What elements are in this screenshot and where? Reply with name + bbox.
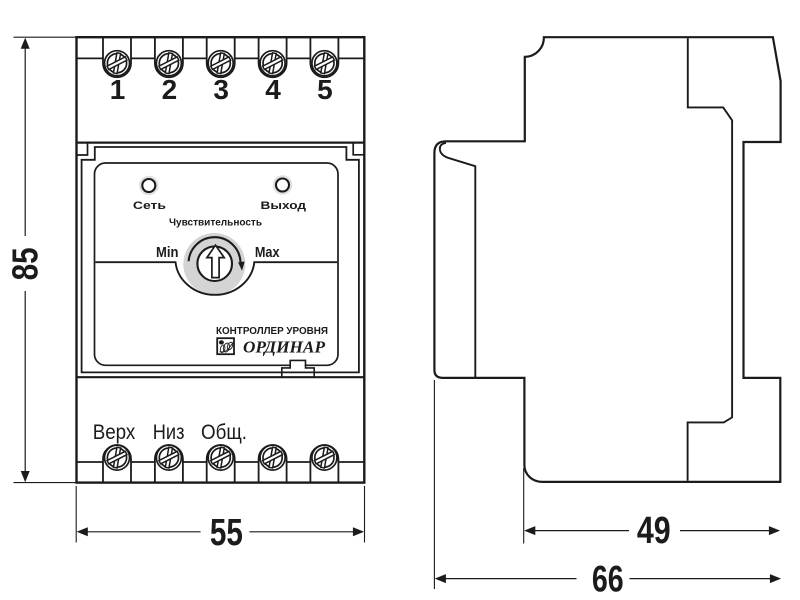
svg-text:5: 5	[317, 74, 333, 105]
svg-text:55: 55	[210, 512, 243, 554]
svg-text:Выход: Выход	[261, 200, 307, 212]
svg-text:ОРДИНАР: ОРДИНАР	[243, 337, 326, 356]
svg-text:Max: Max	[255, 245, 280, 261]
svg-text:66: 66	[592, 558, 624, 599]
svg-text:49: 49	[637, 510, 671, 552]
svg-text:2: 2	[162, 74, 178, 105]
svg-text:КОНТРОЛЛЕР УРОВНЯ: КОНТРОЛЛЕР УРОВНЯ	[216, 326, 328, 337]
svg-text:85: 85	[5, 247, 46, 280]
svg-text:Низ: Низ	[153, 421, 185, 444]
svg-text:3: 3	[213, 74, 229, 105]
svg-text:Сеть: Сеть	[133, 200, 166, 212]
svg-text:Общ.: Общ.	[201, 421, 247, 444]
svg-text:4: 4	[265, 74, 281, 105]
svg-text:Min: Min	[156, 245, 178, 261]
svg-text:1: 1	[110, 74, 126, 105]
svg-text:Чувствительность: Чувствительность	[169, 217, 262, 228]
svg-text:Верх: Верх	[93, 421, 136, 444]
